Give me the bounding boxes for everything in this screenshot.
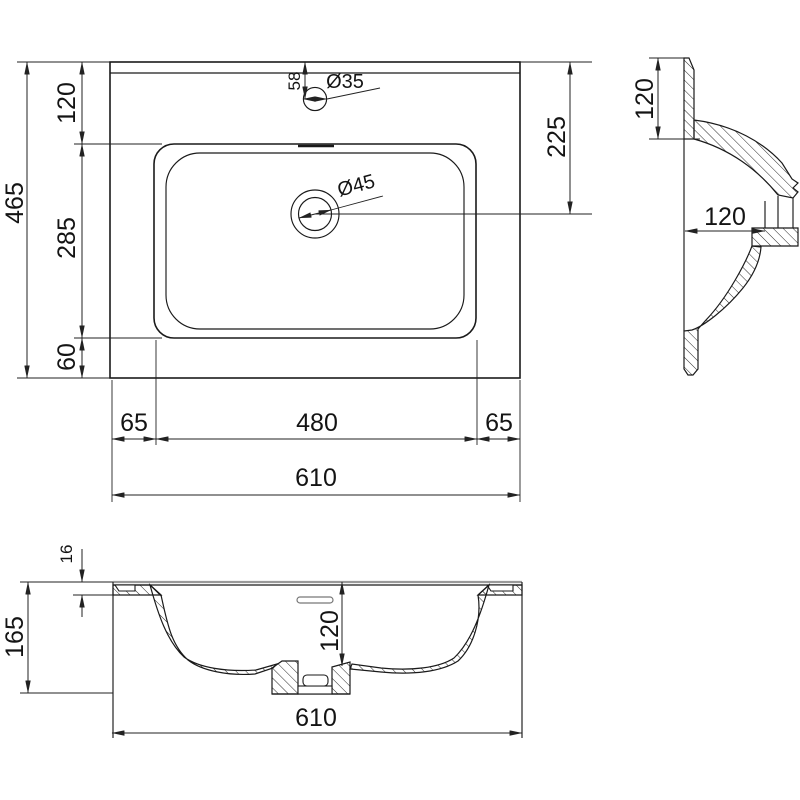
- front-drain-bar: [298, 686, 332, 694]
- dim-dia35-faucet: Ø35: [326, 71, 364, 93]
- dim-120-back-depth: 120: [53, 82, 81, 124]
- dim-dia45-drain: Ø45: [335, 170, 377, 201]
- side-back-wall: [684, 58, 694, 139]
- front-overflow-slot: [297, 597, 333, 603]
- dim-120-deck-height: 120: [631, 78, 659, 120]
- dim-225-drain-from-top: 225: [543, 116, 571, 158]
- basin-outer-edge: [154, 144, 476, 338]
- front-left-rim-ledge: [115, 585, 135, 591]
- plan-outline: [110, 62, 520, 378]
- dim-285-basin-depth: 285: [53, 217, 81, 259]
- front-drain-slot: [303, 675, 328, 686]
- plan-dimensions: 465 120 285 60 58 Ø35 Ø45 225 65 480 65 …: [1, 62, 592, 502]
- front-left-bowl-wall: [150, 585, 277, 674]
- side-deck-channel: [694, 120, 798, 198]
- front-right-bowl-wall: [350, 585, 489, 673]
- dim-16-rim-thickness: 16: [57, 545, 76, 564]
- dia45-leader: [331, 196, 383, 210]
- drawing-canvas: 465 120 285 60 58 Ø35 Ø45 225 65 480 65 …: [0, 0, 800, 800]
- dim-65-right-margin: 65: [485, 409, 513, 437]
- dim-60-front-margin: 60: [53, 343, 81, 371]
- technical-drawing: 465 120 285 60 58 Ø35 Ø45 225 65 480 65 …: [0, 0, 800, 800]
- front-drain-boss-right: [332, 662, 350, 694]
- dim-120-bowl-depth: 120: [316, 610, 344, 652]
- basin-inner-edge: [166, 153, 464, 329]
- dim-165-overall-height: 165: [1, 616, 29, 658]
- dim-610-front-width: 610: [295, 704, 337, 732]
- dim-480-basin-width: 480: [296, 409, 338, 437]
- front-drain-boss-left: [272, 661, 298, 694]
- dim-465-overall-depth: 465: [1, 182, 29, 224]
- front-section-dimensions: 16 165 120 610: [1, 545, 522, 733]
- dim-58-faucet-offset: 58: [285, 72, 304, 91]
- front-right-rim-ledge: [487, 585, 513, 591]
- plan-view: [110, 62, 520, 378]
- dim-610-plan-width: 610: [295, 464, 337, 492]
- dim-65-left-margin: 65: [120, 409, 148, 437]
- side-bowl-wall: [684, 246, 761, 375]
- dim-120-deck-depth: 120: [704, 203, 746, 231]
